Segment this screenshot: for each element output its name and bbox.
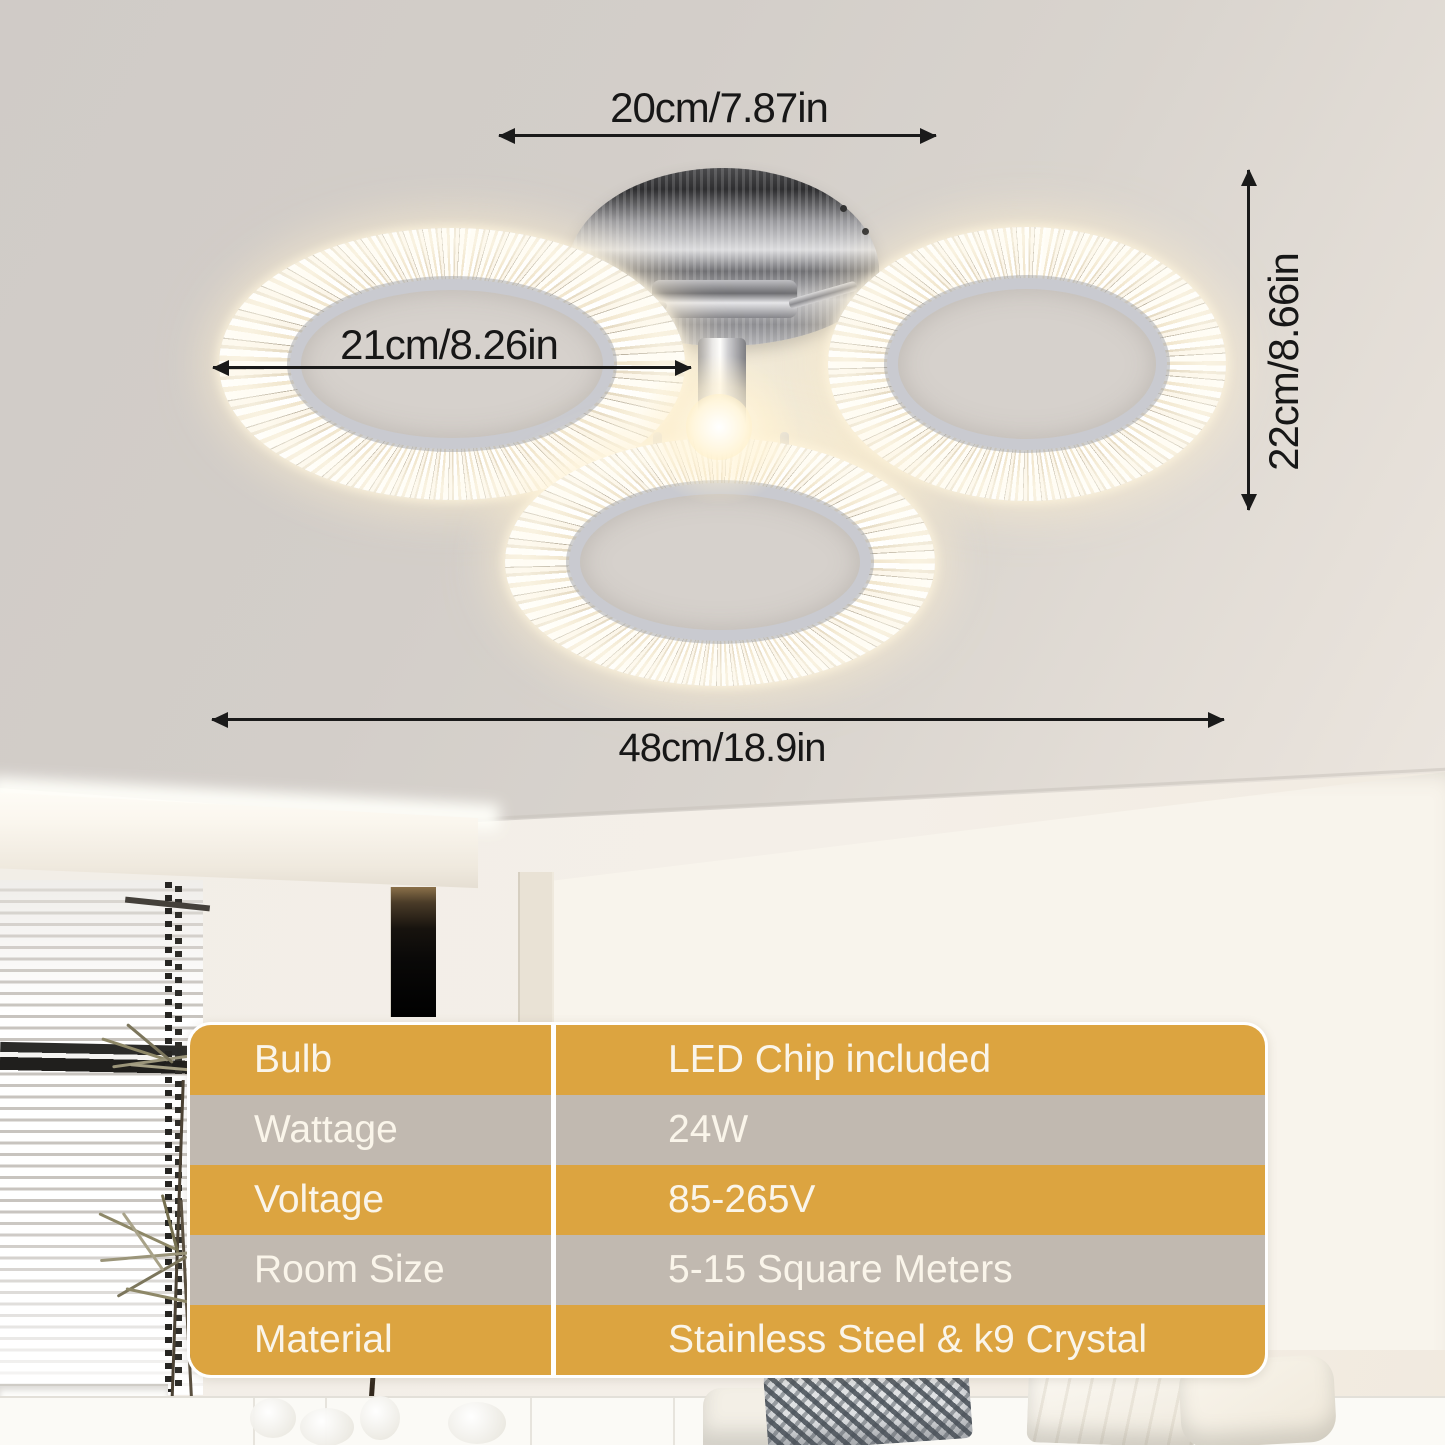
white-flower [300,1408,354,1445]
dimension-label-canopy-width: 20cm/7.87in [610,84,828,132]
crystal-ring-right [828,227,1226,501]
dimension-label-ring-diameter: 21cm/8.26in [340,321,558,369]
spec-label: Wattage [190,1095,551,1165]
spec-value: 85-265V [551,1165,1265,1235]
spec-label: Voltage [190,1165,551,1235]
spec-row: BulbLED Chip included [190,1025,1265,1095]
wall-recess [390,887,436,1017]
spec-row: Room Size5-15 Square Meters [190,1235,1265,1305]
dimension-arrow-canopy-width [499,134,936,137]
sofa-seam [530,1398,532,1445]
spec-row: Wattage24W [190,1095,1265,1165]
spec-row: Voltage85-265V [190,1165,1265,1235]
spec-value: 5-15 Square Meters [551,1235,1265,1305]
canopy-hole [862,228,869,235]
mounting-bracket [652,280,797,318]
ring-hole [898,289,1156,439]
dimension-arrow-ring-diameter [213,366,691,369]
spec-value: 24W [551,1095,1265,1165]
dimension-arrow-total-width [212,718,1224,721]
led-light-core [686,394,752,460]
white-flower [360,1396,400,1440]
spec-row: MaterialStainless Steel & k9 Crystal [190,1305,1265,1375]
spec-label: Bulb [190,1025,551,1095]
product-dimension-image: 20cm/7.87in 21cm/8.26in 22cm/8.66in 48cm… [0,0,1445,1445]
sofa-seam [673,1398,675,1445]
spec-label: Room Size [190,1235,551,1305]
dimension-label-total-width: 48cm/18.9in [619,726,826,771]
spec-label: Material [190,1305,551,1375]
spec-table: BulbLED Chip includedWattage24WVoltage85… [187,1022,1268,1378]
white-flower [250,1398,296,1438]
spec-value: LED Chip included [551,1025,1265,1095]
blind-ladder-tape [165,882,172,1392]
dimension-label-height: 22cm/8.66in [1260,253,1308,471]
spec-value: Stainless Steel & k9 Crystal [551,1305,1265,1375]
canopy-hole [840,205,847,212]
dimension-arrow-height [1247,170,1250,510]
white-flower [448,1402,506,1444]
